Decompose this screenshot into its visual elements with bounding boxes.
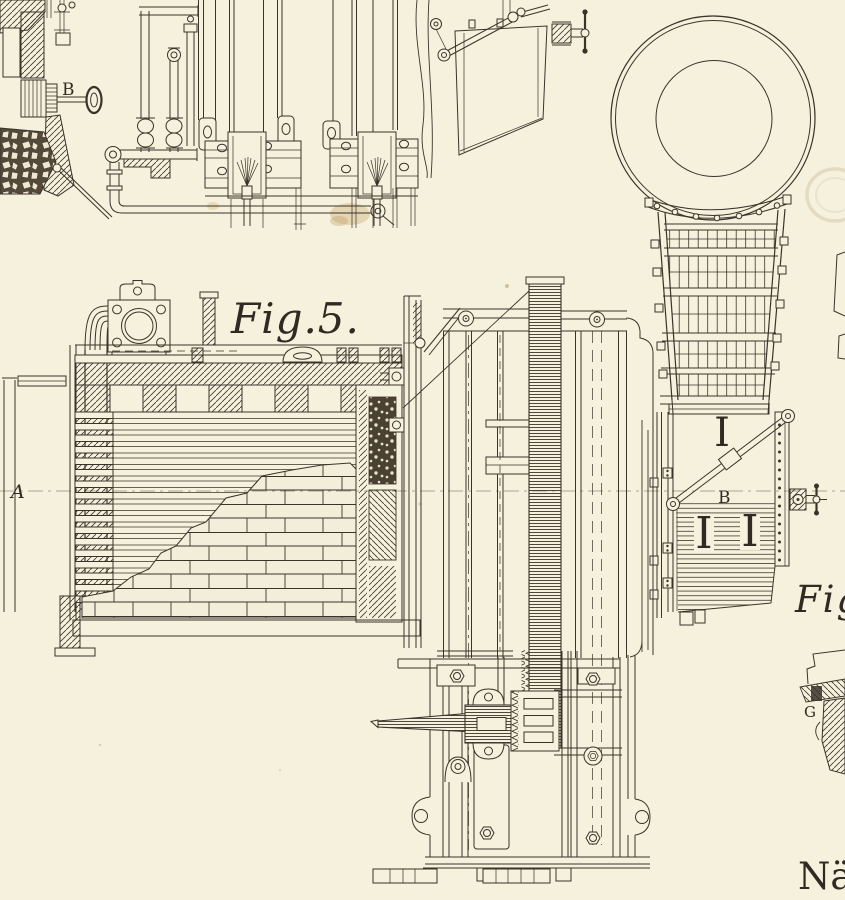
label-part-g: G [804,703,816,721]
caption-fragment: Näg [798,855,845,898]
fig5-title: Fig.5. [230,294,360,343]
label-key-b: B [62,80,75,100]
fig-right-title: Fig. [794,578,845,621]
masonry-blocks [75,385,402,412]
pinion-gear [511,691,559,751]
rack-bar [529,281,561,748]
stencil-i-right: I [741,506,758,557]
label-part-a: A [9,481,25,503]
stencil-i-duct: I [714,410,730,456]
engraving-plate: B [0,0,845,900]
stencil-i-left: I [695,508,712,559]
